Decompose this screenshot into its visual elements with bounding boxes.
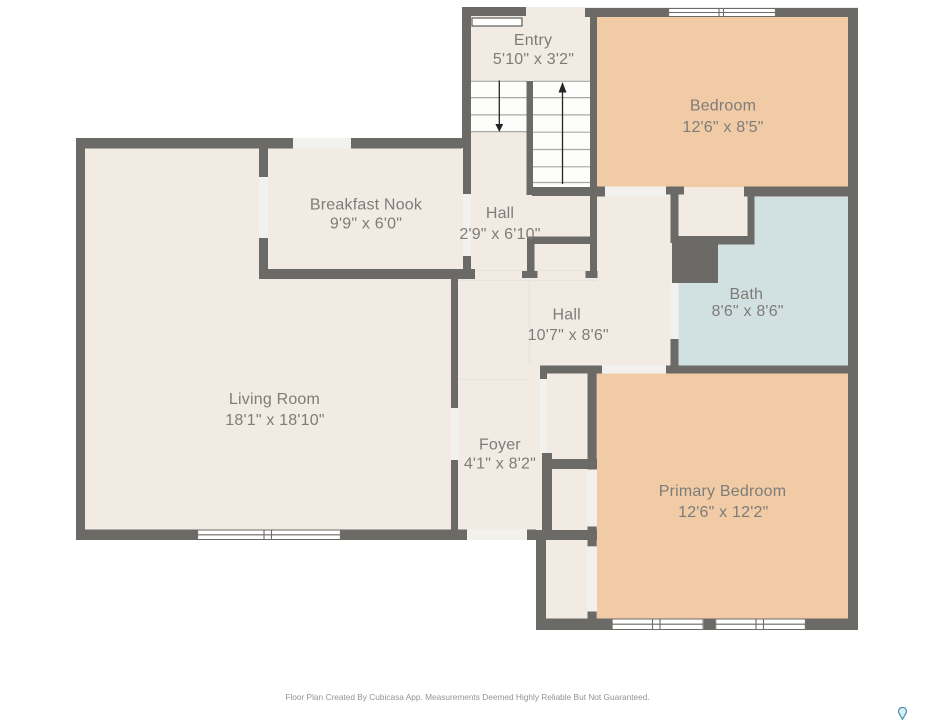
svg-text:10'7" x 8'6": 10'7" x 8'6": [528, 327, 609, 344]
svg-text:12'6" x 8'5": 12'6" x 8'5": [682, 119, 763, 136]
svg-text:Entry: Entry: [514, 32, 552, 49]
svg-text:8'6" x 8'6": 8'6" x 8'6": [712, 303, 784, 320]
svg-text:4'1" x 8'2": 4'1" x 8'2": [464, 456, 536, 473]
svg-text:Bedroom: Bedroom: [690, 98, 756, 115]
svg-text:9'9" x 6'0": 9'9" x 6'0": [330, 216, 402, 233]
svg-text:Primary Bedroom: Primary Bedroom: [659, 483, 786, 500]
svg-text:5'10" x 3'2": 5'10" x 3'2": [493, 51, 574, 68]
svg-text:18'1" x 18'10": 18'1" x 18'10": [225, 412, 324, 429]
svg-text:Breakfast Nook: Breakfast Nook: [310, 197, 423, 214]
svg-text:Living Room: Living Room: [229, 391, 320, 408]
svg-text:Foyer: Foyer: [479, 437, 521, 454]
svg-text:Bath: Bath: [729, 286, 763, 303]
svg-text:12'6" x 12'2": 12'6" x 12'2": [678, 504, 768, 521]
svg-text:2'9" x 6'10": 2'9" x 6'10": [459, 226, 540, 243]
svg-text:Floor Plan Created By Cubicasa: Floor Plan Created By Cubicasa App. Meas…: [285, 692, 649, 702]
svg-text:Hall: Hall: [553, 306, 581, 323]
svg-text:Hall: Hall: [486, 205, 514, 222]
